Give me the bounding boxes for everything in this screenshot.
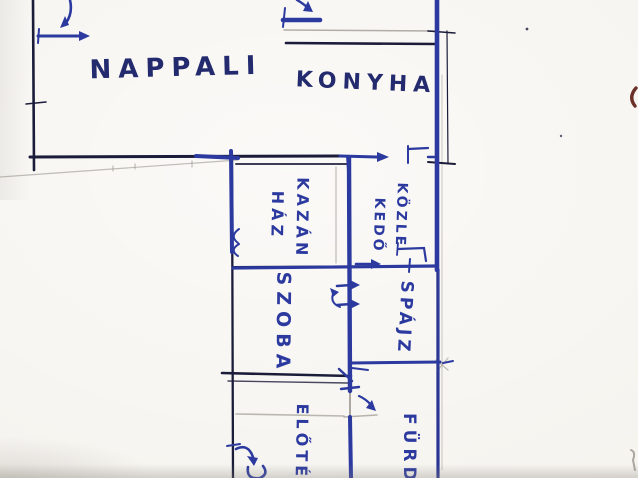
door-tick-spajz-corner <box>339 368 368 381</box>
room-label-kazan-haz: KAZÁN HÁZ <box>263 176 314 259</box>
room-label-nappali: NAPPALI <box>89 52 263 86</box>
room-label-spajz: SPÁJZ <box>392 280 415 356</box>
door-swing-arrow-top-left <box>38 0 90 43</box>
door-opening-konyha-bottom <box>340 146 428 163</box>
door-arcs-kazan-wall <box>234 229 239 256</box>
door-swing-arrow-szoba <box>330 280 360 309</box>
room-label-kozlekedo-line2: KEDŐ <box>366 181 390 254</box>
stray-marks <box>631 88 636 470</box>
floorplan-page: NAPPALI KONYHA KAZÁN HÁZ KÖZLE KEDŐ SZOB… <box>0 0 638 478</box>
room-label-szoba: SZOBA <box>271 272 294 375</box>
paper-shadow-bottom <box>0 464 638 478</box>
room-label-kozlekedo: KÖZLE KEDŐ <box>366 181 412 254</box>
paper-shadow-left <box>0 0 30 200</box>
room-label-kazan-haz-line1: KAZÁN <box>288 177 314 260</box>
room-label-kozlekedo-line1: KÖZLE <box>388 182 412 255</box>
door-swing-arrow-furdo <box>341 387 376 411</box>
room-label-kazan-haz-line2: HÁZ <box>263 176 289 259</box>
door-swing-arrow-konyha-top <box>283 0 320 27</box>
